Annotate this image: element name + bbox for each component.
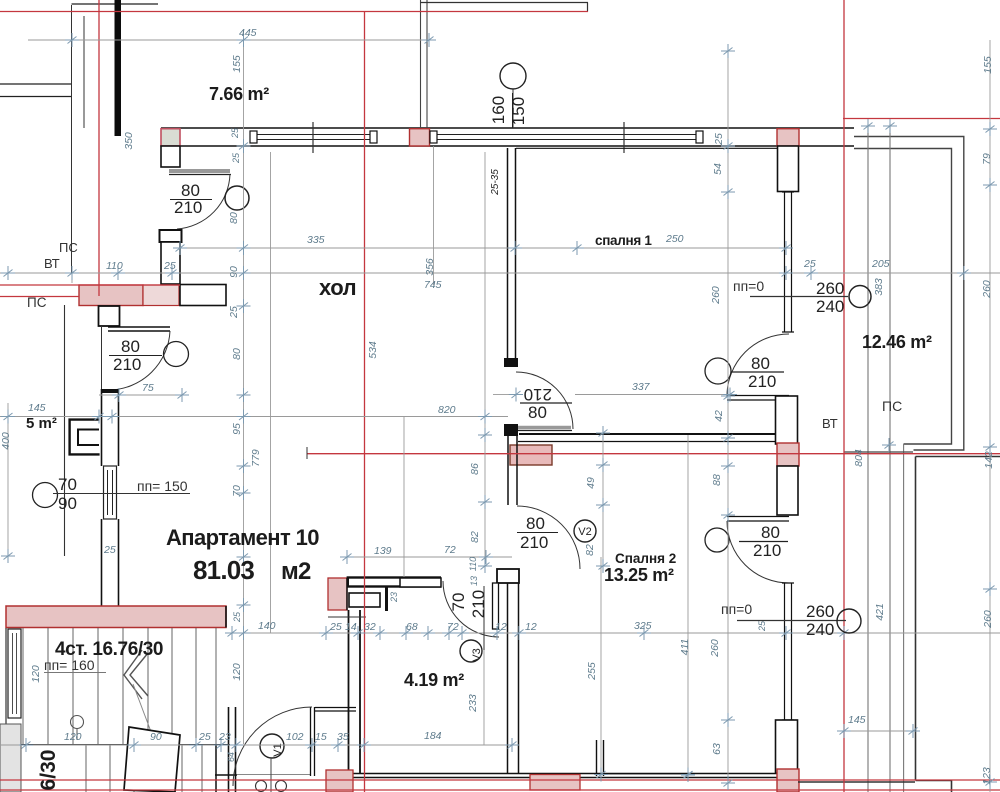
svg-text:210: 210 — [113, 355, 141, 374]
svg-text:325: 325 — [634, 620, 652, 632]
svg-text:123: 123 — [981, 767, 993, 785]
svg-text:82: 82 — [584, 544, 596, 556]
svg-text:23: 23 — [218, 731, 231, 743]
svg-text:205: 205 — [871, 258, 890, 270]
svg-text:210: 210 — [753, 541, 781, 560]
svg-text:пп= 150: пп= 150 — [137, 478, 188, 494]
svg-text:250: 250 — [665, 233, 684, 245]
svg-text:86: 86 — [469, 463, 481, 475]
svg-text:120: 120 — [30, 665, 42, 683]
svg-text:25: 25 — [231, 152, 241, 164]
svg-text:260: 260 — [816, 279, 844, 298]
svg-text:54: 54 — [712, 163, 724, 175]
svg-text:4.19 m²: 4.19 m² — [404, 670, 464, 690]
svg-text:25: 25 — [329, 621, 342, 633]
svg-text:25: 25 — [198, 731, 211, 743]
svg-text:120: 120 — [64, 731, 82, 743]
svg-text:42: 42 — [713, 410, 725, 422]
svg-text:25: 25 — [232, 611, 242, 623]
svg-text:6/30: 6/30 — [37, 750, 60, 791]
svg-text:V3: V3 — [471, 648, 483, 661]
svg-text:23: 23 — [389, 592, 399, 603]
svg-text:82: 82 — [469, 531, 481, 543]
svg-text:240: 240 — [806, 620, 834, 639]
svg-text:804: 804 — [853, 449, 865, 467]
svg-text:80: 80 — [228, 212, 240, 224]
svg-text:81.03: 81.03 — [193, 555, 254, 585]
svg-text:411: 411 — [679, 639, 691, 656]
svg-text:210: 210 — [520, 533, 548, 552]
svg-text:15: 15 — [315, 731, 327, 743]
svg-text:Спалня 2: Спалня 2 — [615, 551, 676, 566]
svg-text:80: 80 — [231, 348, 243, 360]
svg-text:70: 70 — [58, 475, 77, 494]
svg-text:ПС: ПС — [27, 295, 47, 310]
svg-text:210: 210 — [524, 385, 552, 404]
svg-text:25: 25 — [713, 133, 725, 146]
svg-text:140: 140 — [258, 620, 276, 632]
svg-text:Апартамент 10: Апартамент 10 — [166, 525, 319, 550]
svg-text:139: 139 — [374, 545, 392, 557]
svg-text:210: 210 — [748, 372, 776, 391]
svg-text:75: 75 — [142, 382, 154, 394]
svg-text:64: 64 — [226, 752, 236, 762]
svg-text:779: 779 — [250, 449, 262, 467]
svg-text:25-35: 25-35 — [490, 169, 501, 196]
svg-text:260: 260 — [981, 280, 993, 299]
svg-text:пп=0: пп=0 — [721, 601, 752, 617]
svg-text:90: 90 — [228, 266, 240, 278]
svg-text:350: 350 — [123, 132, 135, 150]
svg-text:13.25 m²: 13.25 m² — [604, 565, 674, 585]
svg-text:120: 120 — [231, 663, 243, 681]
svg-text:260: 260 — [806, 602, 834, 621]
svg-text:260: 260 — [710, 286, 722, 305]
svg-text:80: 80 — [751, 354, 770, 373]
svg-text:80: 80 — [761, 523, 780, 542]
svg-text:ВТ: ВТ — [44, 256, 60, 271]
svg-text:155: 155 — [982, 56, 994, 74]
svg-text:63: 63 — [711, 743, 723, 755]
svg-text:80: 80 — [526, 514, 545, 533]
svg-text:хол: хол — [319, 275, 356, 300]
svg-text:32: 32 — [364, 621, 376, 633]
svg-text:25: 25 — [228, 306, 240, 319]
svg-text:25: 25 — [103, 544, 116, 556]
svg-text:68: 68 — [406, 621, 418, 633]
svg-text:49: 49 — [585, 477, 597, 489]
svg-text:210: 210 — [174, 198, 202, 217]
svg-text:25: 25 — [757, 620, 767, 632]
svg-text:спалня 1: спалня 1 — [595, 233, 652, 248]
svg-text:255: 255 — [586, 662, 598, 681]
svg-text:335: 335 — [307, 234, 325, 246]
svg-text:25: 25 — [163, 260, 176, 272]
svg-text:пп=0: пп=0 — [733, 278, 764, 294]
svg-text:ВТ: ВТ — [822, 416, 838, 431]
svg-text:14: 14 — [345, 621, 357, 633]
svg-text:745: 745 — [424, 279, 442, 291]
svg-text:5 m²: 5 m² — [26, 415, 57, 432]
svg-text:90: 90 — [150, 731, 162, 743]
svg-text:ПС: ПС — [59, 240, 78, 255]
svg-text:145: 145 — [28, 402, 46, 414]
svg-text:70: 70 — [449, 593, 468, 612]
svg-text:445: 445 — [239, 27, 257, 39]
svg-text:400: 400 — [0, 432, 12, 450]
svg-text:534: 534 — [367, 341, 379, 359]
svg-text:12.46 m²: 12.46 m² — [862, 332, 932, 352]
svg-text:184: 184 — [424, 730, 442, 742]
svg-text:421: 421 — [874, 603, 886, 621]
svg-text:35: 35 — [337, 731, 349, 743]
svg-text:240: 240 — [816, 297, 844, 316]
svg-text:12: 12 — [525, 621, 537, 633]
svg-text:88: 88 — [711, 474, 723, 486]
svg-text:25: 25 — [803, 258, 816, 270]
svg-text:V2: V2 — [578, 526, 591, 538]
svg-text:160: 160 — [489, 96, 508, 124]
svg-text:233: 233 — [467, 694, 479, 713]
svg-text:210: 210 — [469, 590, 488, 618]
svg-text:12: 12 — [495, 621, 507, 633]
svg-text:пп= 160: пп= 160 — [44, 657, 95, 673]
svg-text:383: 383 — [873, 278, 885, 296]
svg-text:155: 155 — [231, 55, 243, 73]
svg-text:150: 150 — [509, 97, 528, 125]
svg-text:260: 260 — [982, 610, 994, 629]
svg-text:142: 142 — [983, 451, 995, 469]
svg-text:110: 110 — [468, 557, 478, 571]
svg-text:72: 72 — [444, 544, 456, 556]
svg-text:м2: м2 — [281, 558, 311, 585]
svg-text:260: 260 — [709, 639, 721, 658]
svg-text:79: 79 — [981, 153, 993, 165]
svg-text:25: 25 — [230, 127, 240, 139]
svg-text:7.66 m²: 7.66 m² — [209, 84, 269, 104]
svg-text:145: 145 — [848, 714, 866, 726]
svg-text:13: 13 — [469, 576, 479, 586]
svg-text:ПС: ПС — [882, 398, 902, 414]
svg-text:356: 356 — [424, 258, 436, 276]
svg-text:80: 80 — [528, 403, 547, 422]
svg-text:70: 70 — [231, 485, 243, 497]
svg-text:102: 102 — [286, 731, 304, 743]
svg-text:337: 337 — [632, 381, 651, 393]
svg-text:80: 80 — [121, 337, 140, 356]
svg-text:820: 820 — [438, 404, 456, 416]
svg-text:95: 95 — [231, 423, 243, 435]
svg-text:90: 90 — [58, 494, 77, 513]
svg-text:110: 110 — [106, 260, 123, 272]
svg-text:72: 72 — [447, 621, 459, 633]
